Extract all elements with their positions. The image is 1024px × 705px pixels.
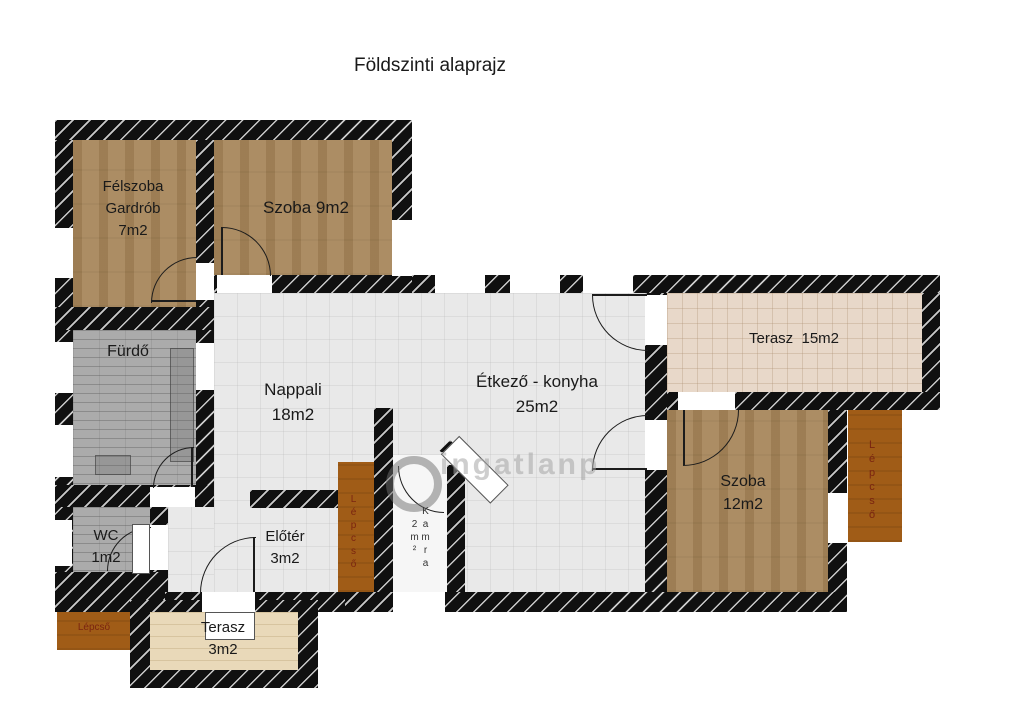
door-opening-szoba12-side bbox=[645, 420, 667, 470]
label-nappali: Nappali 18m2 bbox=[264, 378, 322, 427]
label-felszoba: Félszoba Gardrób 7m2 bbox=[103, 176, 164, 241]
wall-nappali-eloter bbox=[250, 490, 338, 508]
szoba12-area: 12m2 bbox=[720, 493, 765, 516]
wc-name: WC bbox=[91, 525, 120, 547]
sink bbox=[95, 455, 131, 475]
label-stairs-middle: Lépcső bbox=[348, 480, 359, 585]
label-stairs-bottom-left: Lépcső bbox=[78, 621, 110, 636]
door-leaf-felszoba bbox=[151, 300, 196, 302]
door-opening-szoba12-top bbox=[678, 392, 735, 410]
door-leaf-wc bbox=[132, 524, 150, 574]
label-stairs-right: Lépcső bbox=[866, 428, 878, 533]
felszoba-name2: Gardrób bbox=[103, 198, 164, 220]
door-opening-felszoba bbox=[196, 263, 214, 300]
floor-plan-canvas: Földszinti alaprajz bbox=[0, 0, 1024, 705]
window-furdo-left-2 bbox=[55, 425, 73, 477]
window-etkezo-top-2 bbox=[510, 273, 560, 293]
door-opening-entrance bbox=[202, 592, 255, 612]
window-szoba9-right bbox=[392, 220, 412, 276]
label-terasz3: Terasz 3m2 bbox=[201, 617, 245, 661]
kamra-area: 2m² bbox=[409, 519, 420, 558]
etkezo-area: 25m2 bbox=[476, 395, 598, 420]
opening-kamra-bottom bbox=[393, 592, 445, 612]
wc-area: 1m2 bbox=[91, 547, 120, 569]
label-kamra: Kamra 2m² bbox=[409, 488, 431, 588]
label-terasz15: Terasz 15m2 bbox=[749, 328, 839, 350]
door-leaf-terasz15 bbox=[592, 294, 647, 296]
eloter-area: 3m2 bbox=[265, 548, 304, 570]
nappali-name: Nappali bbox=[264, 378, 322, 403]
window-wc-left bbox=[55, 520, 72, 566]
window-furdo-left-1 bbox=[55, 342, 73, 393]
door-leaf-szoba12-top bbox=[683, 410, 685, 465]
door-opening-szoba9 bbox=[217, 275, 272, 293]
kamra-name: Kamra bbox=[420, 506, 431, 571]
terasz3-name: Terasz bbox=[201, 617, 245, 639]
window-szoba12-right bbox=[828, 493, 847, 543]
window-etkezo-top-3 bbox=[583, 273, 633, 293]
label-wc: WC 1m2 bbox=[91, 525, 120, 569]
label-szoba12: Szoba 12m2 bbox=[720, 470, 765, 516]
szoba12-name: Szoba bbox=[720, 470, 765, 493]
wall-top-left-block bbox=[55, 120, 412, 140]
door-opening-terasz15 bbox=[645, 295, 667, 345]
label-furdo: Fürdő bbox=[107, 340, 149, 363]
page-title: Földszinti alaprajz bbox=[354, 52, 506, 80]
felszoba-area: 7m2 bbox=[103, 220, 164, 242]
etkezo-name: Étkező - konyha bbox=[476, 370, 598, 395]
window-etkezo-top-1 bbox=[435, 273, 485, 293]
terasz3-area: 3m2 bbox=[201, 639, 245, 661]
felszoba-name: Félszoba bbox=[103, 176, 164, 198]
wall-kamra-right bbox=[447, 465, 465, 592]
watermark-text: ingatlanp bbox=[440, 448, 600, 482]
bathtub bbox=[170, 348, 194, 462]
door-opening-wc bbox=[150, 525, 168, 570]
door-leaf-furdo bbox=[191, 447, 193, 487]
label-eloter: Előtér 3m2 bbox=[265, 526, 304, 570]
door-opening-furdo bbox=[150, 487, 195, 507]
door-leaf-szoba9 bbox=[221, 227, 223, 275]
label-szoba9: Szoba 9m2 bbox=[263, 196, 349, 221]
eloter-name: Előtér bbox=[265, 526, 304, 548]
window-felszoba-left bbox=[55, 228, 73, 278]
window-furdo-right bbox=[196, 343, 214, 390]
wall-furdo-top bbox=[55, 307, 214, 330]
nappali-area: 18m2 bbox=[264, 403, 322, 428]
label-etkezo: Étkező - konyha 25m2 bbox=[476, 370, 598, 419]
wall-main-top bbox=[412, 275, 940, 293]
door-leaf-entrance bbox=[253, 537, 255, 592]
